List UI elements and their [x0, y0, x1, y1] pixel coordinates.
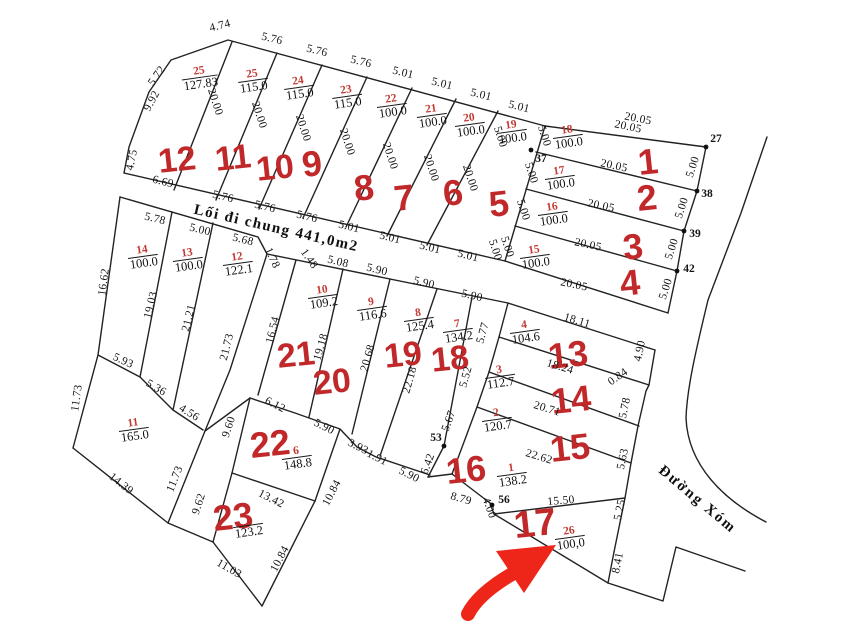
boundary-point-label: 27 [710, 133, 722, 145]
parcel-label: 14100.0 [126, 242, 159, 272]
parcel-label: 21100.0 [415, 101, 448, 131]
parcel-label: 25115.0 [236, 66, 269, 96]
parcel-label: 7134.2 [441, 316, 474, 346]
parcel-label: 17100.0 [543, 163, 576, 193]
boundary-point-label: 39 [689, 228, 701, 240]
lot-number: 21 [275, 336, 316, 374]
boundary-point-label: 53 [430, 432, 442, 444]
parcel-label: 6148.8 [280, 443, 313, 473]
parcel-label: 4104.6 [508, 317, 541, 347]
lot-number: 12 [156, 141, 197, 179]
parcel-label: 11165.0 [117, 415, 150, 445]
parcel-label: 3112.7 [483, 362, 516, 392]
lot-number: 20 [311, 363, 352, 401]
lot-number: 11 [213, 139, 252, 177]
parcel-label: 23115.0 [330, 82, 363, 112]
road-outline [686, 137, 767, 522]
lot-number: 17 [512, 503, 558, 545]
lot-number: 7 [392, 179, 416, 217]
lot-number: 2 [635, 179, 659, 217]
lot-number: 9 [300, 145, 324, 183]
lot-number: 5 [487, 185, 511, 223]
parcel-label: 22100.0 [375, 91, 408, 121]
parcel-label: 25127.83 [180, 63, 220, 94]
parcel-label: 9116.6 [355, 294, 388, 324]
lot-number: 10 [254, 149, 295, 187]
lot-number: 8 [352, 169, 376, 207]
parcel-label: 12122.1 [221, 249, 254, 279]
lot-number: 6 [441, 174, 465, 212]
parcel-label: 18100.0 [551, 122, 584, 152]
red-arrow-annotation [468, 545, 556, 614]
boundary-point-label: 37 [535, 153, 547, 165]
lot-number: 1 [636, 143, 660, 181]
parcel-label: 26100,0 [553, 523, 586, 553]
parcel-label: 1138.2 [495, 460, 528, 490]
boundary-point-label: 42 [683, 263, 695, 275]
lot-number: 15 [548, 428, 592, 468]
boundary-point-label: 38 [701, 188, 713, 200]
lot-number: 3 [621, 228, 645, 266]
parcel-label: 24115.0 [282, 73, 315, 103]
parcel-label: 13100.0 [171, 245, 204, 275]
lot-number: 4 [618, 264, 642, 302]
parcel-label: 20100.0 [453, 110, 486, 140]
cadastral-map: Lối đi chung 441,0m2 Đường Xóm 4.745.765… [0, 0, 842, 634]
boundary-point-label: 56 [498, 494, 510, 506]
parcel-label: 19100.0 [495, 117, 528, 147]
dimension-label: 15.50 [547, 494, 575, 508]
parcel-label: 15100.0 [518, 242, 551, 272]
parcel-label: 10109.2 [306, 282, 339, 312]
lot-number: 16 [444, 450, 488, 490]
parcel-label: 16100.0 [536, 199, 569, 229]
parcel-label: 8125.4 [402, 305, 435, 335]
parcel-label: 2120.7 [480, 405, 513, 435]
